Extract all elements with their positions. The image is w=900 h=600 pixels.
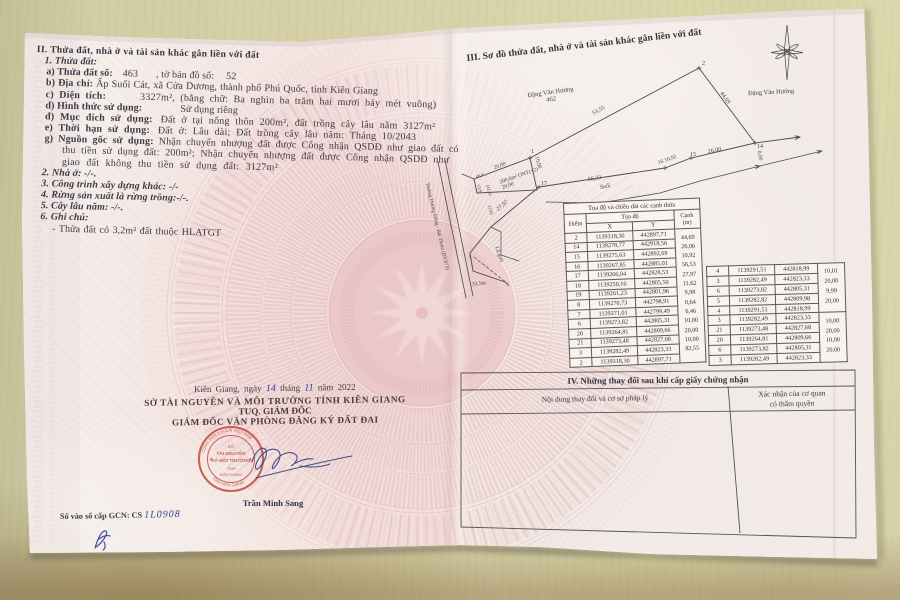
svg-text:TỈNH: TỈNH (226, 466, 235, 471)
svg-text:TÀI NGUYÊN: TÀI NGUYÊN (217, 449, 247, 456)
svg-text:VÀ MÔI TRƯỜNG: VÀ MÔI TRƯỜNG (211, 456, 250, 463)
svg-text:★: ★ (209, 457, 214, 463)
svg-text:SỞ: SỞ (228, 444, 235, 449)
svg-text:KIÊN GIANG: KIÊN GIANG (220, 472, 243, 477)
